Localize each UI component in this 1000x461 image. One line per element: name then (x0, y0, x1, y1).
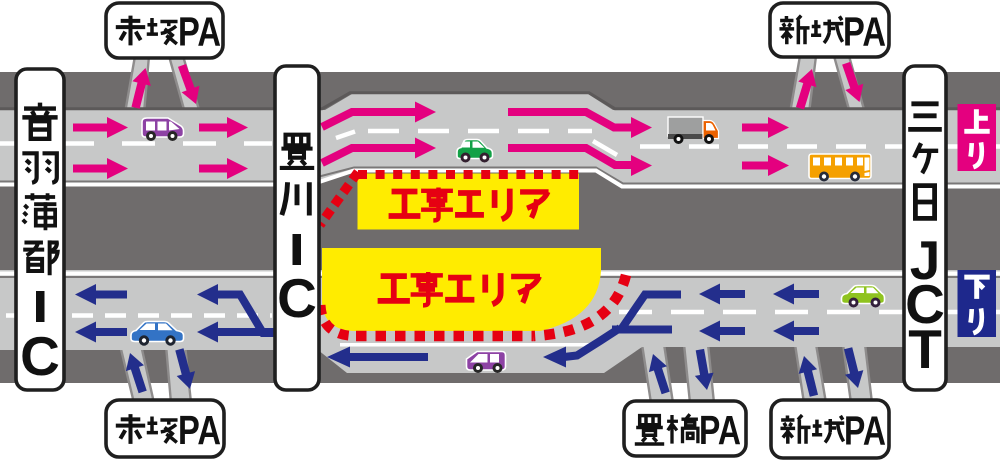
svg-text:PA: PA (178, 407, 221, 453)
svg-text:PA: PA (178, 9, 221, 55)
svg-text:PA: PA (844, 408, 886, 454)
svg-text:PA: PA (843, 9, 886, 55)
svg-text:C: C (20, 325, 60, 387)
svg-text:T: T (908, 318, 942, 380)
svg-text:PA: PA (699, 407, 741, 453)
svg-text:C: C (277, 267, 317, 329)
